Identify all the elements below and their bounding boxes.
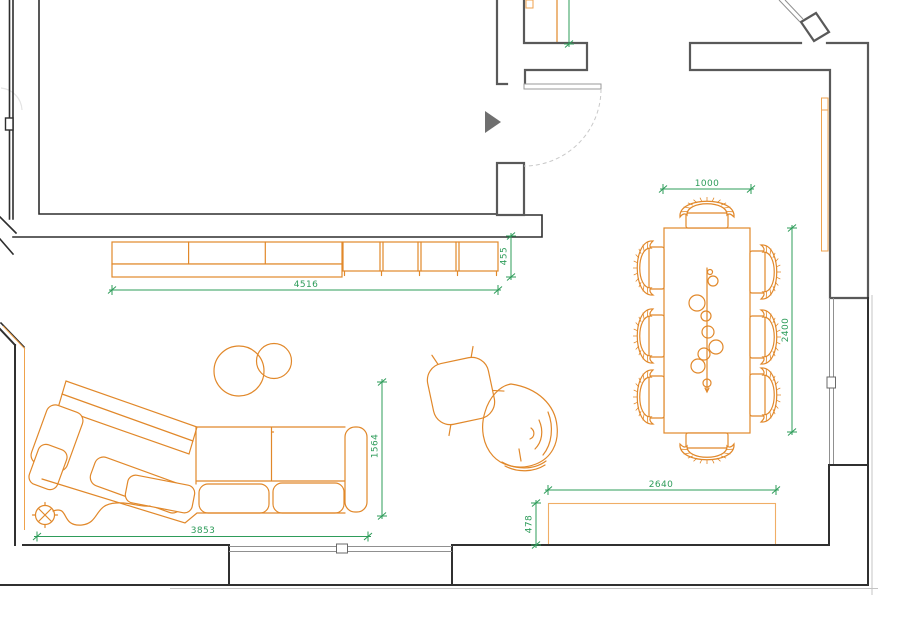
dining-chair	[750, 368, 781, 422]
dimension-cropped-top	[564, 0, 574, 48]
dining-chair	[633, 309, 664, 363]
dining-chair	[633, 370, 664, 424]
dimension-label: 4516	[294, 280, 319, 290]
bottom-window	[229, 544, 452, 553]
dimension-dining-table-width: 1000	[659, 179, 755, 194]
tv-console	[112, 242, 498, 277]
door-leaf	[524, 84, 601, 89]
dimension-label: 2640	[649, 480, 674, 490]
dimension-label: 455	[500, 247, 510, 265]
dimension-label: 478	[525, 515, 535, 533]
dining-chair	[750, 245, 781, 299]
coffee-table-large	[214, 346, 264, 396]
window-mullion	[337, 544, 348, 553]
dimension-dining-table-length: 2400	[781, 225, 797, 436]
door	[524, 84, 601, 166]
wall-notch	[6, 118, 14, 130]
dimension-sofa-depth: 1564	[371, 379, 388, 520]
dimension-bench-depth: 478	[525, 500, 542, 549]
door-swing-arc	[524, 89, 601, 166]
dimension-label: 1000	[695, 179, 720, 189]
dimension-label: 1564	[371, 434, 381, 459]
left-wall	[0, 323, 25, 545]
sectional-sofa	[27, 381, 367, 528]
diagonal-thin-wall	[779, 0, 803, 22]
window-mullion	[827, 377, 836, 388]
door-walls	[497, 0, 587, 215]
overhang-line	[170, 295, 878, 595]
right-window	[827, 298, 836, 465]
dining-table	[633, 197, 781, 464]
dimension-sofa-width: 3853	[33, 526, 372, 542]
dimension-label: 2400	[781, 318, 791, 343]
floor-plan: 4516 455 1000 2400 1564 3853 2640 478	[0, 0, 900, 636]
tv-console-cabinet	[112, 242, 342, 264]
dining-chair	[680, 197, 734, 228]
offcanvas-door-arc	[1, 88, 22, 110]
dimension-bench-width: 2640	[544, 480, 780, 495]
tv-console-base	[112, 264, 342, 277]
wall-stub	[497, 163, 524, 215]
dimension-tv-console-width: 4516	[108, 280, 502, 295]
diagonal-wall-pier	[801, 13, 829, 41]
dining-chair	[680, 433, 734, 464]
section-marker-icon	[485, 111, 501, 133]
sofa-cushion	[199, 484, 269, 513]
dining-chair	[750, 310, 781, 364]
floor-plan-canvas: 4516 455 1000 2400 1564 3853 2640 478	[0, 0, 900, 636]
curtain	[822, 98, 829, 251]
upper-left-room-walls	[0, 0, 542, 254]
coffee-tables	[214, 344, 292, 397]
armchair-square	[422, 342, 510, 437]
cropped-furniture-top	[526, 0, 533, 8]
dimension-tv-console-depth: 455	[500, 233, 517, 281]
sofa-cushion	[273, 483, 344, 513]
bench	[549, 504, 776, 546]
dining-chair	[633, 241, 664, 295]
sofa-back-right	[196, 427, 345, 484]
dimension-label: 3853	[191, 526, 216, 536]
lamp-cable	[53, 503, 150, 525]
sofa-arm-right	[345, 427, 367, 512]
